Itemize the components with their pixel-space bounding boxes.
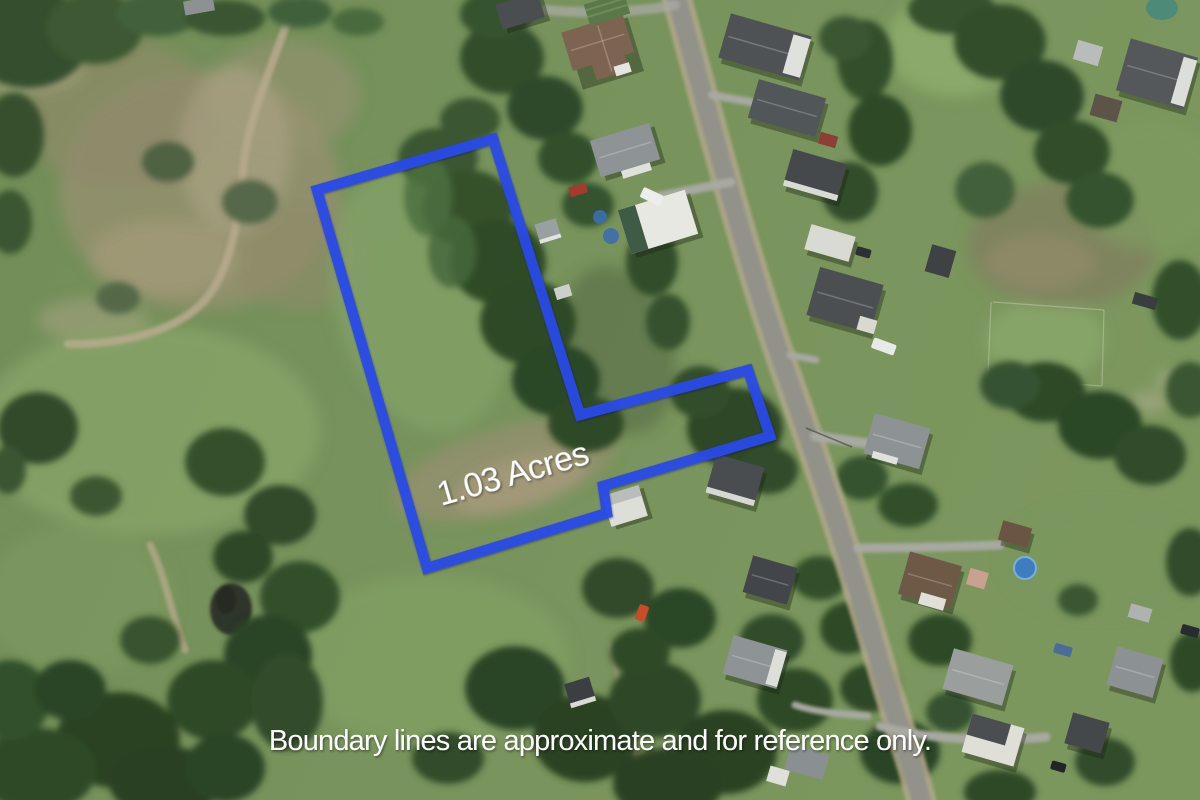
- aerial-map-view: 1.03 Acres Boundary lines are approximat…: [0, 0, 1200, 800]
- disclaimer-text: Boundary lines are approximate and for r…: [269, 725, 931, 757]
- aerial-photo: 1.03 Acres Boundary lines are approximat…: [0, 0, 1200, 800]
- pool: [1014, 557, 1036, 579]
- pool: [603, 228, 619, 244]
- pool: [593, 210, 607, 224]
